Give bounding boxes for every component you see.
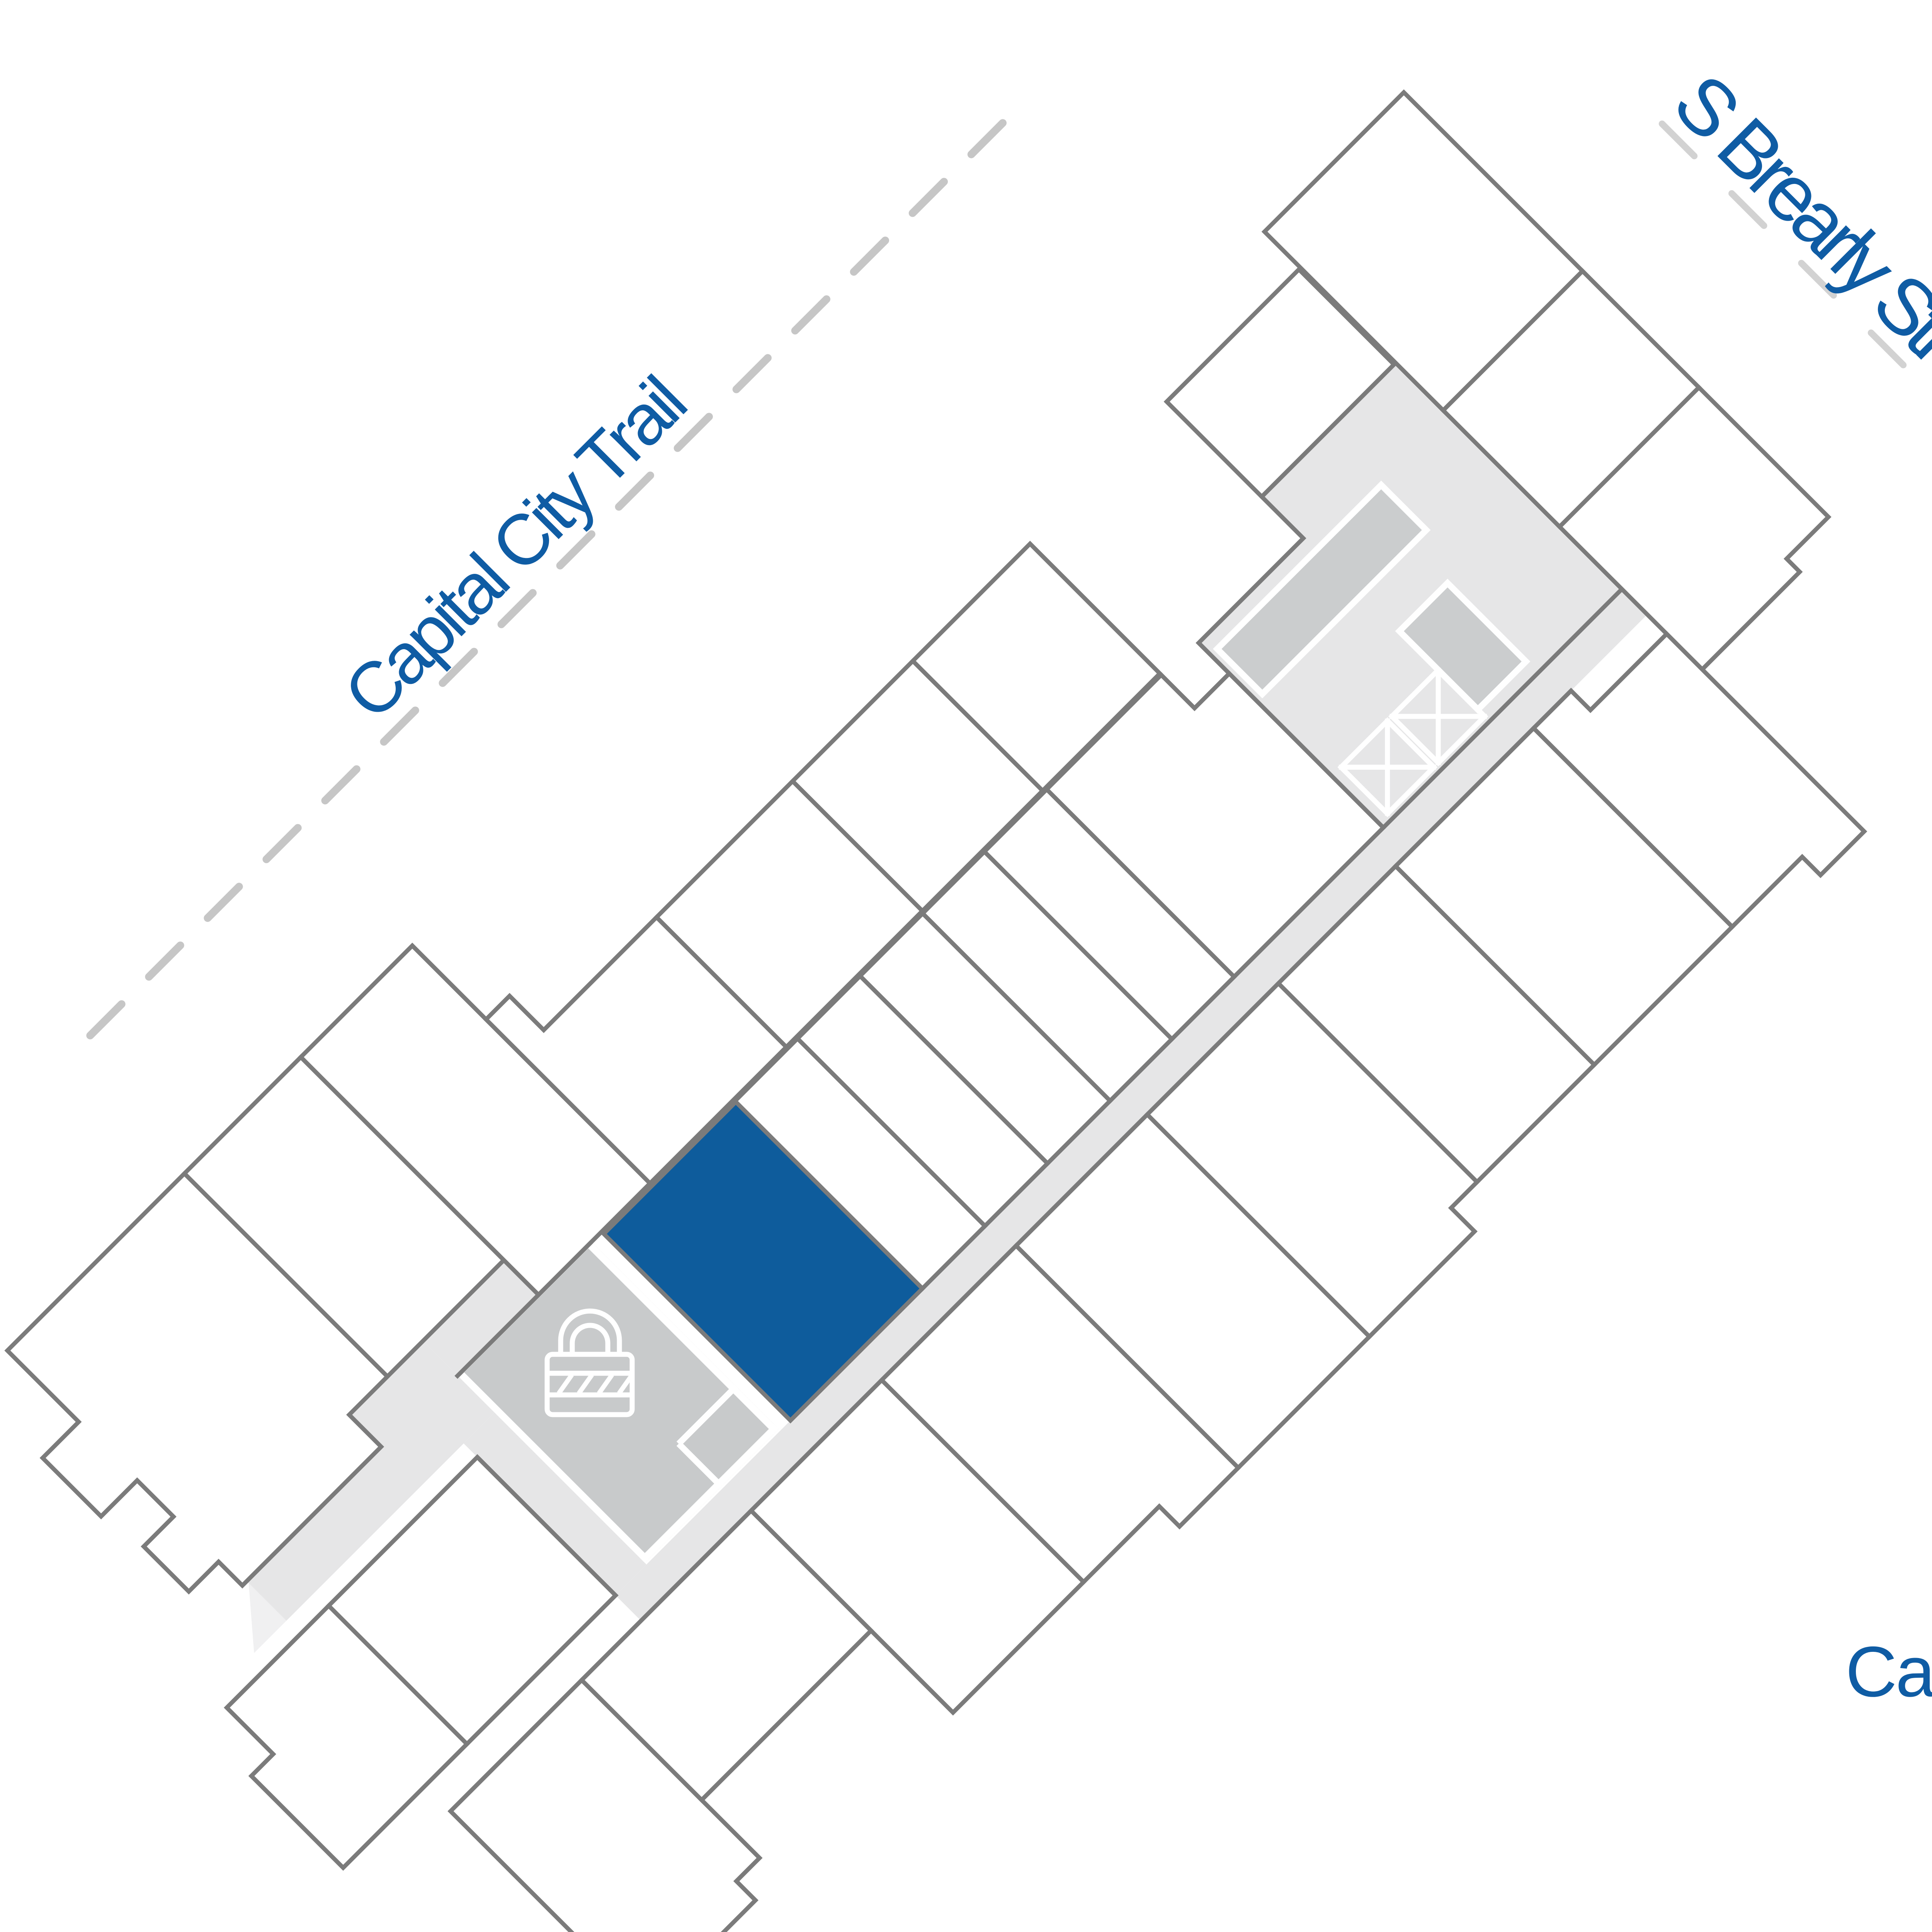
svg-text:Capital City Trail: Capital City Trail: [329, 364, 699, 734]
svg-text:Capitol: Capitol: [1845, 1632, 1932, 1712]
